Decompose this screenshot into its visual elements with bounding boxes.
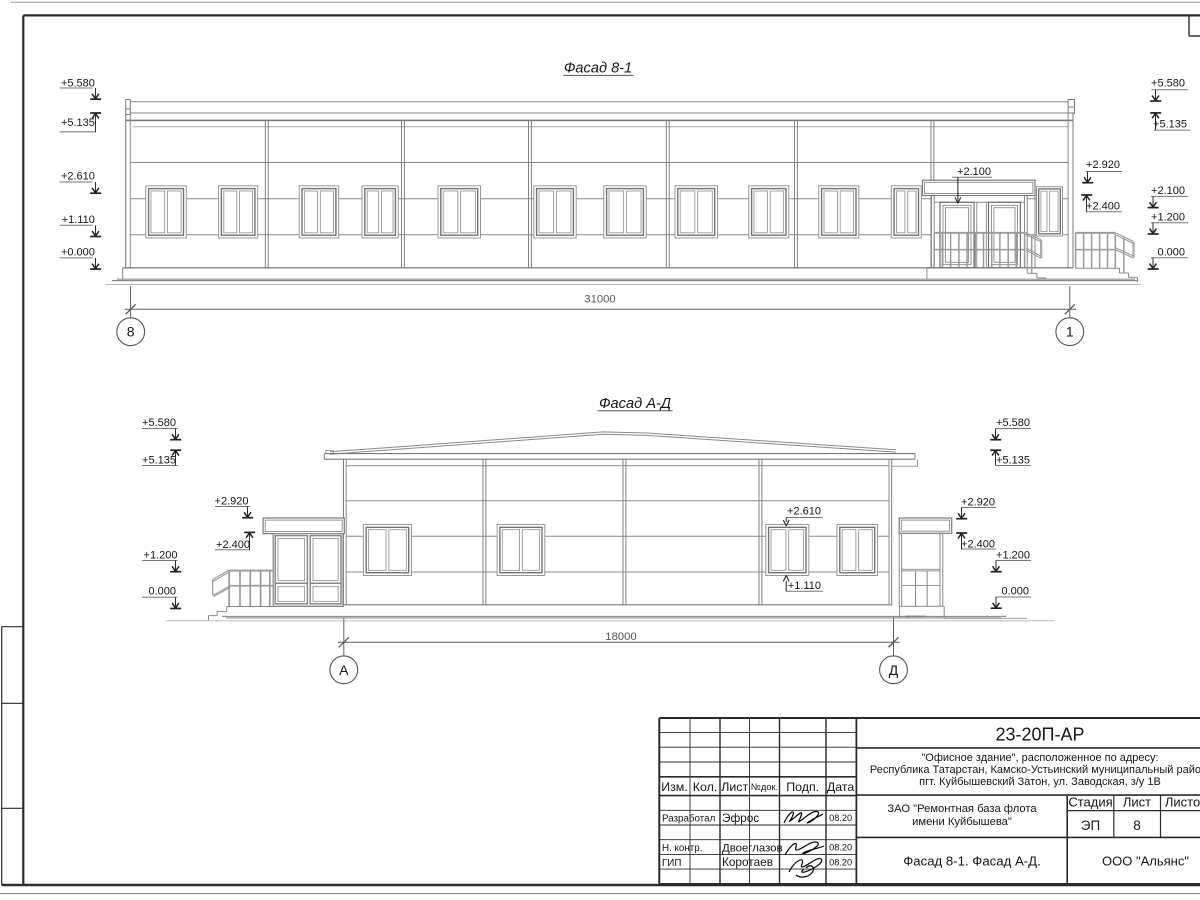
svg-text:Лист: Лист	[1123, 795, 1151, 810]
svg-text:ГИП: ГИП	[662, 858, 681, 869]
svg-text:+2.920: +2.920	[215, 496, 249, 508]
svg-text:+2.100: +2.100	[957, 166, 991, 178]
svg-text:ЭП: ЭП	[1081, 818, 1100, 833]
svg-text:Двоеглазов: Двоеглазов	[722, 843, 783, 855]
svg-text:Д: Д	[889, 662, 899, 678]
svg-text:+5.135: +5.135	[61, 117, 95, 129]
svg-text:Коротаев: Коротаев	[722, 855, 773, 869]
svg-text:Листов: Листов	[1165, 795, 1200, 810]
svg-text:+2.610: +2.610	[787, 506, 821, 518]
svg-text:Кол.: Кол.	[693, 780, 718, 794]
svg-text:08.20: 08.20	[829, 857, 852, 867]
svg-text:+5.580: +5.580	[996, 417, 1030, 429]
svg-text:0.000: 0.000	[1001, 586, 1029, 598]
svg-text:Н. контр.: Н. контр.	[662, 843, 702, 854]
svg-text:+5.135: +5.135	[142, 455, 176, 467]
svg-text:Фасад 8-1: Фасад 8-1	[564, 61, 632, 77]
svg-text:+1.200: +1.200	[996, 550, 1030, 562]
svg-text:Республика Татарстан, Камско-У: Республика Татарстан, Камско-Устьинский …	[870, 764, 1200, 776]
svg-text:31000: 31000	[584, 294, 615, 306]
svg-text:+0.000: +0.000	[61, 247, 95, 259]
svg-text:+1.200: +1.200	[144, 550, 178, 562]
svg-text:0.000: 0.000	[1157, 247, 1185, 259]
svg-text:+2.400: +2.400	[1086, 201, 1120, 213]
svg-text:08.20: 08.20	[829, 843, 852, 853]
svg-text:Разработал: Разработал	[662, 814, 716, 825]
svg-text:+2.610: +2.610	[61, 171, 95, 183]
svg-text:+5.135: +5.135	[1153, 119, 1187, 131]
svg-text:1: 1	[1066, 324, 1074, 340]
svg-text:А: А	[339, 662, 349, 678]
svg-text:+1.110: +1.110	[788, 580, 821, 592]
svg-text:+5.580: +5.580	[142, 417, 176, 429]
svg-text:+2.920: +2.920	[961, 497, 995, 509]
svg-text:Дата: Дата	[827, 780, 855, 794]
svg-text:имени Куйбышева": имени Куйбышева"	[912, 816, 1012, 828]
svg-text:+5.580: +5.580	[1151, 77, 1185, 89]
svg-text:18000: 18000	[605, 631, 636, 643]
svg-text:Фасад 8-1. Фасад А-Д.: Фасад 8-1. Фасад А-Д.	[903, 854, 1040, 869]
svg-text:Лист: Лист	[721, 780, 748, 794]
svg-text:23-20П-АР: 23-20П-АР	[996, 725, 1085, 745]
svg-text:8: 8	[1133, 818, 1141, 833]
svg-text:Фасад А-Д: Фасад А-Д	[599, 396, 671, 412]
svg-text:пгт. Куйбышевский Затон, ул. З: пгт. Куйбышевский Затон, ул. Заводская, …	[919, 776, 1161, 788]
svg-text:+1.200: +1.200	[1151, 212, 1185, 224]
svg-text:+2.920: +2.920	[1086, 159, 1120, 171]
svg-text:Стадия: Стадия	[1068, 795, 1112, 810]
svg-text:0.000: 0.000	[148, 586, 176, 598]
svg-text:№док.: №док.	[751, 781, 778, 792]
svg-text:8: 8	[127, 324, 135, 340]
svg-text:08.20: 08.20	[829, 813, 852, 823]
svg-text:Подп.: Подп.	[786, 780, 819, 794]
svg-text:"Офисное здание", расположенно: "Офисное здание", расположенное по адрес…	[921, 752, 1158, 764]
svg-text:Изм.: Изм.	[661, 780, 688, 794]
svg-text:ЗАО "Ремонтная база флота: ЗАО "Ремонтная база флота	[887, 803, 1037, 815]
svg-text:Эфрос: Эфрос	[722, 811, 759, 825]
svg-text:+1.110: +1.110	[62, 214, 95, 226]
svg-text:+5.135: +5.135	[996, 455, 1030, 467]
svg-text:+2.100: +2.100	[1151, 185, 1185, 197]
svg-text:ООО "Альянс": ООО "Альянс"	[1102, 854, 1189, 869]
